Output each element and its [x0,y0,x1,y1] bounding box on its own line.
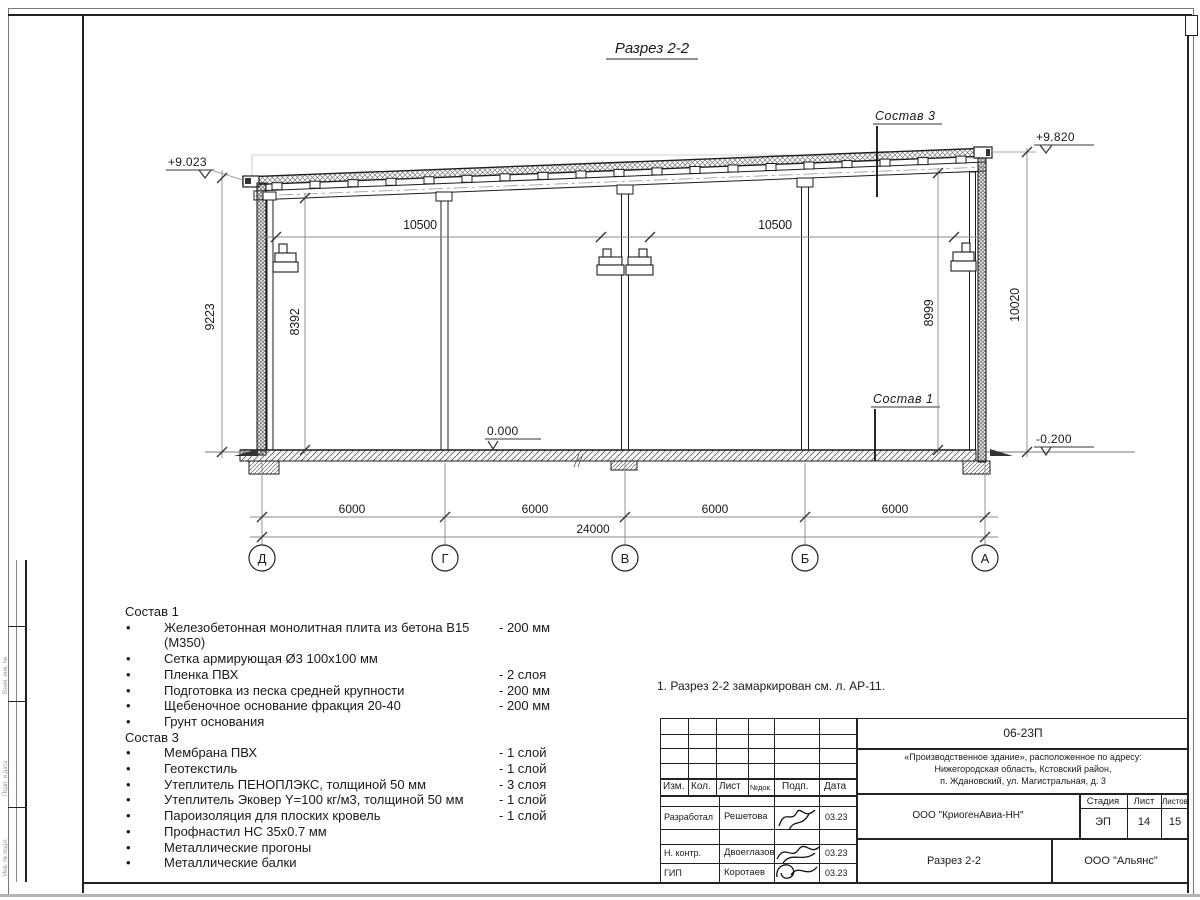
tb-project-line2: Нижегородская область, Кстовский район, [857,764,1189,774]
dim-bay-2: 6000 [522,502,549,516]
axis-bubbles: Д Г В Б А [249,545,998,571]
tb-project-line3: п. Ждановский, ул. Магистральная, д. 3 [857,776,1189,786]
floor-slab [240,450,976,467]
axis-A: А [981,551,990,566]
sostav1-label: Состав 1 [873,392,933,406]
tb-col-izm: Изм. [663,781,684,792]
foundations [249,461,990,474]
tb-name-1: Решетова [724,811,768,822]
tb-sheet-label: Лист [1127,796,1161,807]
bullet [125,714,142,730]
elev-floor: 0.000 [487,424,519,438]
bullet [125,698,142,714]
tb-sheets: 15 [1161,816,1189,828]
tb-company: ООО "КриогенАвиа-НН" [857,810,1079,821]
dim-10020: 10020 [1008,288,1022,322]
list-item: Железобетонная монолитная плита из бетон… [125,620,577,651]
list-item: Профнастил НС 35х0.7 мм [125,824,577,840]
elev-left-top: +9.023 [168,155,207,169]
stub-label-2: Подп. и дата [3,761,9,796]
sostav3-label: Состав 3 [875,109,935,123]
tb-org: ООО "Альянс" [1053,855,1189,867]
list-item: Сетка армирующая Ø3 100х100 мм [125,651,577,667]
sostav1-header: Состав 1 [125,604,577,620]
dim-9223: 9223 [203,303,217,330]
bullet [125,761,142,777]
axis-D: Д [258,551,267,566]
bullet [125,777,142,793]
bullet [125,855,142,871]
tb-name-3: Коротаев [724,867,765,878]
list-item: Металлические балки [125,855,577,871]
tb-stage: ЭП [1079,816,1127,828]
section-drawing: Разрез 2-2 [0,0,1200,600]
tb-project-line1: «Производственное здание», расположенное… [857,752,1189,762]
list-item: Металлические прогоны [125,840,577,856]
sheet-bottom-edge [0,894,1200,897]
title-block: Изм. Кол. Лист №док. Подп. Дата Разработ… [660,718,1188,883]
list-item: Щебеночное основание фракция 20-40- 200 … [125,698,577,714]
list-item: Подготовка из песка средней крупности- 2… [125,683,577,699]
bullet [125,620,142,651]
tb-drawing-name: Разрез 2-2 [857,855,1051,867]
list-item: Грунт основания [125,714,577,730]
list-item: Мембрана ПВХ- 1 слой [125,745,577,761]
bullet [125,840,142,856]
dim-total: 24000 [576,522,610,536]
signature-1 [775,804,819,832]
list-item: Утеплитель Эковер Y=100 кг/м3, толщиной … [125,792,577,808]
sostav3-header: Состав 3 [125,730,577,746]
tb-role-2: Н. контр. [664,848,701,858]
dim-8392: 8392 [288,308,302,335]
tb-col-list: Лист [719,781,741,792]
tb-date-2: 03.23 [825,848,848,858]
dim-bay-4: 6000 [882,502,909,516]
stub-label-3: Инв. № подл. [3,839,9,876]
bullet [125,808,142,824]
tb-col-ndok: №док. [750,783,772,792]
bay-dimensions: 6000 6000 6000 6000 24000 [250,463,998,545]
drawing-title: Разрез 2-2 [606,40,698,59]
composition-lists: Состав 1 Железобетонная монолитная плита… [125,604,577,871]
note: 1. Разрез 2-2 замаркирован см. л. АР-11. [657,679,885,693]
drawing-sheet: Взам. инв. № Подп. и дата Инв. № подл. Р… [0,0,1200,900]
dim-span-left: 10500 [403,218,437,232]
tb-stage-label: Стадия [1079,796,1127,807]
bullet [125,683,142,699]
left-wall [257,183,266,455]
columns [263,172,976,450]
bullet [125,667,142,683]
bullet [125,745,142,761]
axis-B: Б [801,551,810,566]
tb-col-data: Дата [824,781,846,792]
tb-role-3: ГИП [664,868,682,878]
tb-sheets-label: Листов [1161,797,1189,806]
tb-doc-number: 06-23П [857,726,1189,740]
list-item: Утеплитель ПЕНОПЛЭКС, толщиной 50 мм- 3 … [125,777,577,793]
list-item: Пленка ПВХ- 2 слоя [125,667,577,683]
signature-3 [771,859,821,884]
tb-col-kol: Кол. [691,781,711,792]
dim-8999: 8999 [922,299,936,326]
tb-role-1: Разработал [664,812,713,822]
tb-date-1: 03.23 [825,812,848,822]
dim-span-right: 10500 [758,218,792,232]
list-item: Пароизоляция для плоских кровель- 1 слой [125,808,577,824]
bullet [125,824,142,840]
right-wall [978,158,986,462]
axis-V: В [621,551,630,566]
stub-label-1: Взам. инв. № [3,657,9,694]
tb-date-3: 03.23 [825,868,848,878]
dim-bay-3: 6000 [702,502,729,516]
list-item: Геотекстиль- 1 слой [125,761,577,777]
bullet [125,792,142,808]
elev-ground: -0.200 [1036,432,1072,446]
elev-right-top: +9.820 [1036,130,1075,144]
dim-bay-1: 6000 [339,502,366,516]
bullet [125,651,142,667]
tb-col-podp: Подп. [782,781,809,792]
drawing-title-text: Разрез 2-2 [615,40,690,57]
tb-name-2: Двоеглазов [724,847,775,858]
axis-G: Г [441,551,448,566]
tb-sheet: 14 [1127,816,1161,828]
